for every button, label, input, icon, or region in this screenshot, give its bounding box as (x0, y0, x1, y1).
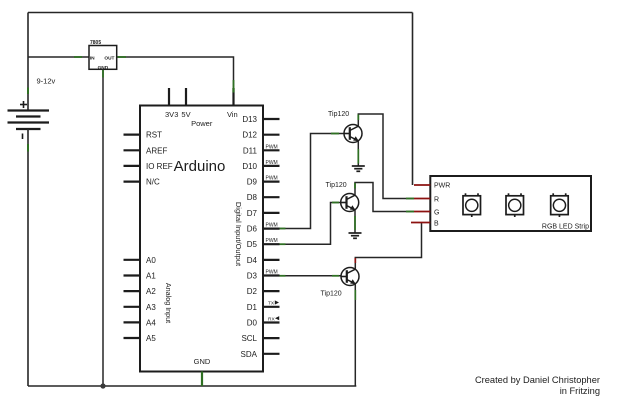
svg-text:5V: 5V (181, 110, 190, 119)
svg-text:Power: Power (191, 119, 213, 128)
svg-text:D5: D5 (247, 240, 258, 249)
svg-text:D1: D1 (247, 303, 258, 312)
svg-text:R: R (434, 197, 439, 204)
svg-text:Arduino: Arduino (174, 158, 226, 175)
svg-text:A3: A3 (146, 303, 156, 312)
svg-text:Tip120: Tip120 (326, 182, 347, 189)
svg-text:D10: D10 (242, 162, 257, 171)
svg-text:PWR: PWR (434, 183, 450, 190)
svg-text:Vin: Vin (227, 110, 238, 119)
svg-text:D12: D12 (242, 131, 257, 140)
svg-text:IO REF: IO REF (146, 162, 173, 171)
svg-text:OUT: OUT (104, 55, 114, 61)
svg-text:D11: D11 (243, 146, 258, 155)
svg-text:Analog Input: Analog Input (164, 283, 173, 323)
svg-text:3V3: 3V3 (165, 110, 178, 119)
svg-text:A0: A0 (146, 256, 156, 265)
svg-text:PWM: PWM (266, 144, 278, 150)
svg-text:Tip120: Tip120 (321, 291, 342, 298)
svg-text:GND: GND (194, 357, 211, 366)
svg-text:9-12v: 9-12v (37, 77, 56, 86)
svg-text:PWM: PWM (266, 160, 278, 166)
svg-text:Created by Daniel Christopher: Created by Daniel Christopher (475, 375, 600, 385)
svg-text:Tip120: Tip120 (328, 111, 349, 118)
svg-text:D4: D4 (247, 256, 258, 265)
svg-text:RST: RST (146, 131, 162, 140)
svg-text:PWM: PWM (266, 176, 278, 182)
svg-text:SDA: SDA (241, 350, 258, 359)
svg-text:A2: A2 (146, 287, 156, 296)
svg-text:7805: 7805 (90, 40, 101, 46)
svg-text:RGB LED Strip: RGB LED Strip (542, 224, 589, 231)
svg-text:D8: D8 (247, 193, 258, 202)
svg-text:D3: D3 (247, 272, 258, 281)
svg-text:SCL: SCL (241, 334, 257, 343)
svg-text:D6: D6 (247, 225, 258, 234)
svg-text:IN: IN (90, 55, 95, 61)
svg-text:A1: A1 (146, 272, 156, 281)
svg-text:D13: D13 (242, 115, 257, 124)
svg-text:D7: D7 (247, 209, 258, 218)
svg-text:AREF: AREF (146, 146, 167, 155)
svg-text:G: G (434, 210, 439, 217)
svg-text:A5: A5 (146, 334, 156, 343)
svg-text:RX: RX (268, 316, 275, 322)
svg-text:A4: A4 (146, 318, 156, 327)
svg-text:PWM: PWM (266, 270, 278, 276)
svg-text:D2: D2 (247, 287, 258, 296)
svg-text:D9: D9 (247, 178, 258, 187)
svg-text:N/C: N/C (146, 178, 160, 187)
svg-text:in Fritzing: in Fritzing (560, 386, 600, 396)
svg-text:D0: D0 (247, 319, 258, 328)
svg-text:Digital Input/Output: Digital Input/Output (234, 202, 243, 267)
svg-text:TX: TX (268, 301, 275, 307)
svg-text:PWM: PWM (266, 238, 278, 244)
svg-text:B: B (434, 221, 439, 228)
svg-text:PWM: PWM (266, 223, 278, 229)
